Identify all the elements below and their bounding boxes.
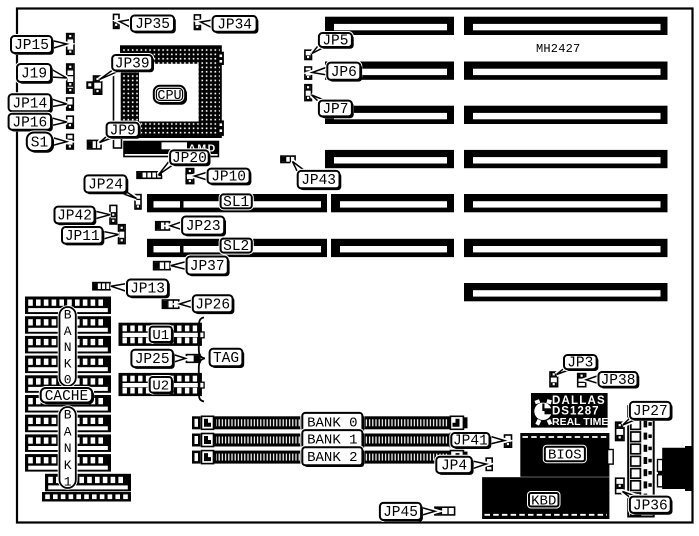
svg-text:JP5: JP5: [322, 34, 348, 50]
svg-text:SL2: SL2: [223, 239, 249, 255]
svg-text:JP24: JP24: [88, 178, 123, 194]
svg-text:JP37: JP37: [190, 259, 225, 275]
svg-text:JP38: JP38: [601, 373, 636, 389]
svg-text:JP20: JP20: [172, 151, 207, 167]
svg-text:A: A: [64, 424, 72, 439]
svg-text:JP27: JP27: [633, 404, 668, 420]
svg-text:SL1: SL1: [223, 195, 249, 211]
svg-text:JP42: JP42: [57, 209, 92, 225]
svg-text:JP36: JP36: [633, 498, 668, 514]
svg-text:JP39: JP39: [115, 56, 150, 72]
svg-text:TAG: TAG: [213, 351, 239, 367]
svg-text:1: 1: [64, 475, 72, 490]
svg-text:A: A: [64, 324, 72, 339]
svg-text:JP45: JP45: [383, 505, 418, 521]
svg-text:JP23: JP23: [186, 219, 221, 235]
svg-text:U1: U1: [152, 328, 169, 344]
svg-text:JP34: JP34: [217, 18, 252, 34]
svg-text:CPU: CPU: [157, 89, 181, 104]
svg-text:JP10: JP10: [211, 170, 246, 186]
svg-text:JP14: JP14: [12, 96, 47, 112]
svg-text:N: N: [64, 441, 72, 456]
svg-text:JP13: JP13: [130, 282, 165, 298]
svg-text:JP26: JP26: [195, 297, 230, 313]
svg-text:JP4: JP4: [441, 459, 467, 475]
svg-text:JP6: JP6: [331, 65, 357, 81]
svg-text:JP15: JP15: [14, 38, 49, 54]
svg-text:B: B: [64, 308, 72, 323]
svg-text:JP41: JP41: [453, 434, 488, 450]
svg-text:JP11: JP11: [65, 229, 100, 245]
svg-text:0: 0: [64, 373, 72, 388]
svg-text:N: N: [64, 340, 72, 355]
svg-text:BANK 2: BANK 2: [307, 450, 357, 466]
svg-text:JP9: JP9: [110, 123, 136, 139]
svg-text:B: B: [64, 408, 72, 423]
svg-text:JP43: JP43: [301, 173, 336, 189]
svg-text:J19: J19: [21, 67, 47, 83]
svg-text:S1: S1: [31, 135, 48, 151]
svg-text:K: K: [64, 356, 72, 371]
svg-text:JP7: JP7: [322, 102, 348, 118]
svg-text:JP3: JP3: [567, 356, 593, 372]
svg-text:JP35: JP35: [135, 17, 170, 33]
svg-text:JP25: JP25: [135, 352, 170, 368]
svg-text:CACHE: CACHE: [45, 389, 89, 405]
svg-text:REAL TIME: REAL TIME: [552, 416, 608, 428]
svg-text:MH2427: MH2427: [536, 42, 580, 56]
svg-text:U2: U2: [152, 378, 169, 394]
svg-text:BIOS: BIOS: [548, 448, 582, 464]
svg-text:KBD: KBD: [531, 493, 556, 509]
svg-text:K: K: [64, 458, 72, 473]
svg-text:JP16: JP16: [12, 115, 47, 131]
